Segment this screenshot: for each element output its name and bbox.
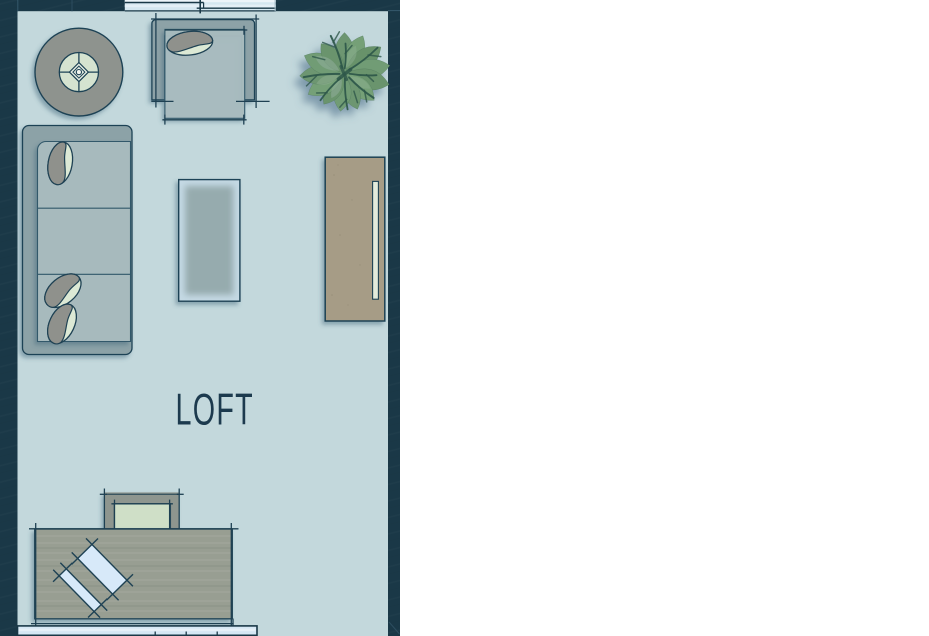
svg-text:LOFT: LOFT: [175, 384, 254, 434]
